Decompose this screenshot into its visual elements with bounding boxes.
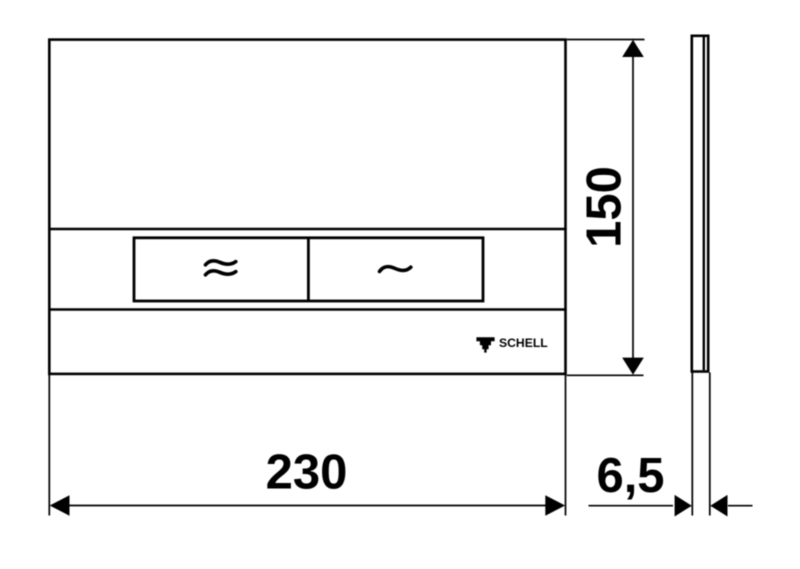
svg-text:6,5: 6,5 [596, 449, 664, 503]
svg-text:150: 150 [577, 166, 631, 248]
svg-text:230: 230 [266, 446, 348, 500]
svg-text:SCHELL: SCHELL [499, 336, 548, 350]
